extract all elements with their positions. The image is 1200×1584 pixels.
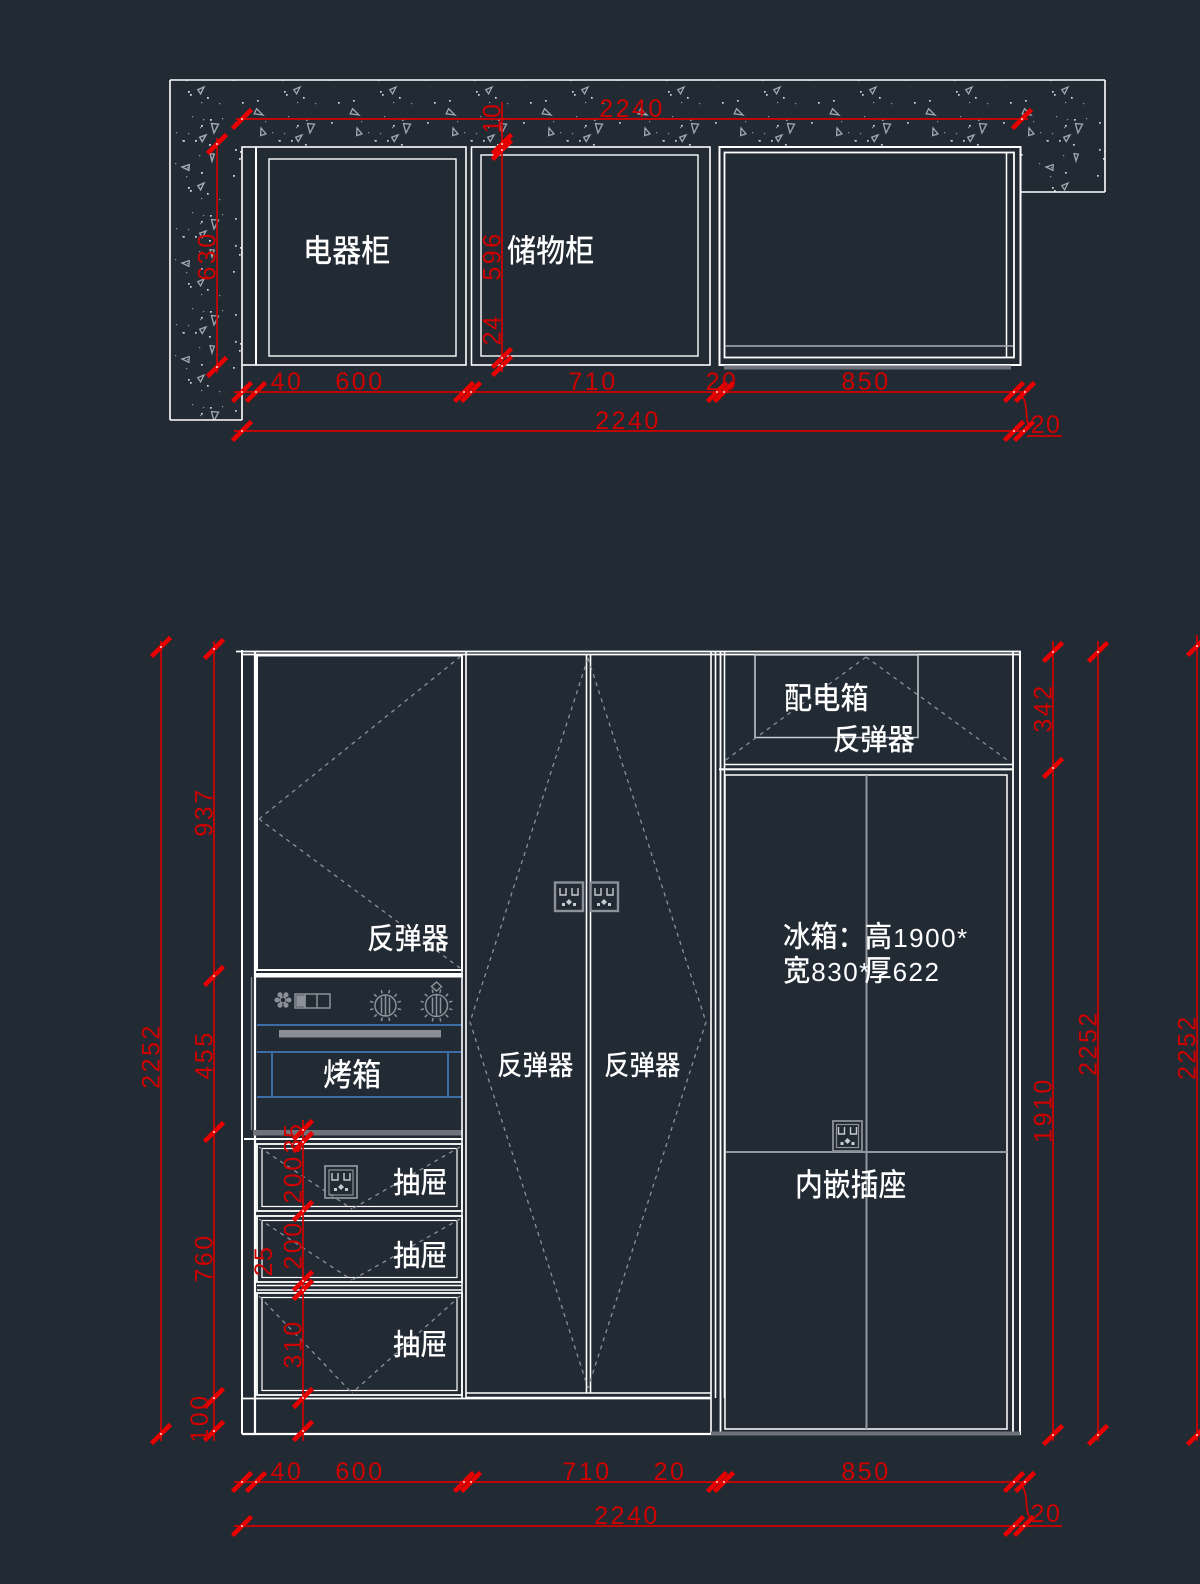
svg-text:200: 200: [280, 1220, 308, 1269]
svg-text:20: 20: [706, 368, 739, 396]
svg-text:630: 630: [194, 231, 222, 280]
svg-text:100: 100: [186, 1393, 214, 1442]
svg-text:1910: 1910: [1030, 1077, 1058, 1143]
svg-text:2240: 2240: [594, 1502, 660, 1530]
svg-text:342: 342: [1030, 683, 1058, 732]
svg-text:2240: 2240: [595, 407, 661, 435]
svg-text:850: 850: [841, 1458, 890, 1486]
svg-text:760: 760: [191, 1233, 219, 1282]
svg-text:1900*: 1900*: [893, 923, 968, 953]
svg-text:2252: 2252: [1075, 1010, 1103, 1076]
svg-text:830*: 830*: [811, 957, 871, 987]
svg-text:2240: 2240: [599, 95, 665, 123]
svg-text:20: 20: [1031, 411, 1062, 439]
svg-text:310: 310: [280, 1319, 308, 1368]
svg-text:622: 622: [893, 957, 941, 987]
svg-text:937: 937: [191, 787, 219, 836]
svg-text:20: 20: [654, 1458, 687, 1486]
svg-text:850: 850: [841, 368, 890, 396]
svg-text:710: 710: [568, 368, 617, 396]
svg-text:200: 200: [280, 1154, 308, 1203]
svg-text:455: 455: [191, 1030, 219, 1079]
svg-text:600: 600: [335, 368, 384, 396]
svg-text:710: 710: [562, 1458, 611, 1486]
svg-text:35: 35: [280, 1123, 308, 1154]
svg-text:2252: 2252: [1174, 1014, 1200, 1080]
svg-text:40: 40: [271, 1458, 304, 1486]
svg-text:40: 40: [271, 368, 304, 396]
svg-text:2252: 2252: [138, 1023, 166, 1089]
svg-text:596: 596: [479, 231, 507, 280]
svg-text:20: 20: [1031, 1500, 1062, 1528]
svg-text:600: 600: [335, 1458, 384, 1486]
svg-text:10: 10: [479, 103, 507, 134]
svg-text:24: 24: [479, 315, 507, 346]
svg-text:25: 25: [250, 1246, 278, 1277]
